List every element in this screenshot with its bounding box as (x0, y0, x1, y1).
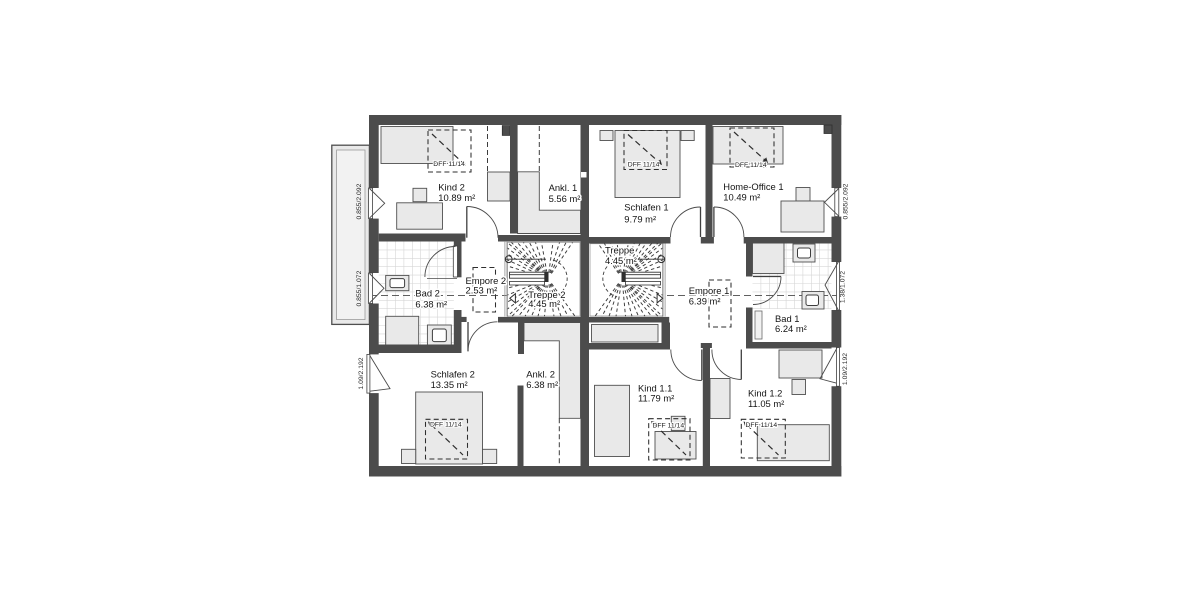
svg-text:1.38/1.072: 1.38/1.072 (840, 271, 847, 303)
svg-text:Treppe: Treppe (605, 244, 634, 255)
svg-text:13.35 m²: 13.35 m² (431, 379, 468, 390)
svg-text:11.05 m²: 11.05 m² (748, 398, 784, 409)
svg-text:0.855/2.092: 0.855/2.092 (842, 183, 849, 219)
svg-text:10.89 m²: 10.89 m² (438, 192, 475, 203)
svg-text:Bad 2: Bad 2 (415, 287, 440, 298)
svg-text:1.09/2.192: 1.09/2.192 (358, 357, 365, 389)
svg-text:9.79 m²: 9.79 m² (624, 213, 656, 224)
svg-text:4.45 m²: 4.45 m² (605, 255, 637, 266)
svg-text:DFF 11/14: DFF 11/14 (433, 161, 465, 168)
svg-text:DFF 11/14: DFF 11/14 (628, 161, 660, 168)
svg-text:Ankl. 1: Ankl. 1 (549, 182, 578, 193)
svg-text:6.24 m²: 6.24 m² (775, 323, 807, 334)
svg-text:Ankl. 2: Ankl. 2 (526, 368, 555, 379)
svg-text:11.79 m²: 11.79 m² (638, 393, 674, 404)
svg-text:6.38 m²: 6.38 m² (526, 379, 558, 390)
svg-text:0.855/1.072: 0.855/1.072 (356, 270, 363, 306)
svg-text:2.53 m²: 2.53 m² (466, 284, 498, 295)
svg-text:DFF 11/14: DFF 11/14 (746, 422, 778, 429)
svg-text:0.855/2.092: 0.855/2.092 (356, 183, 363, 219)
svg-text:Schlafen 2: Schlafen 2 (431, 368, 475, 379)
svg-text:DFF 11/14: DFF 11/14 (653, 423, 685, 430)
svg-text:10.49 m²: 10.49 m² (723, 191, 760, 202)
svg-text:6.38 m²: 6.38 m² (415, 299, 447, 310)
svg-text:6.39 m²: 6.39 m² (689, 295, 721, 306)
svg-text:1.09/2.192: 1.09/2.192 (842, 353, 849, 385)
svg-text:Kind 2: Kind 2 (438, 182, 465, 193)
svg-text:DFF 11/14: DFF 11/14 (430, 421, 462, 428)
svg-text:Schlafen 1: Schlafen 1 (624, 202, 668, 213)
svg-text:5.56 m²: 5.56 m² (549, 193, 581, 204)
svg-text:Empore 1: Empore 1 (689, 285, 730, 296)
svg-text:DFF 11/14: DFF 11/14 (735, 162, 767, 169)
svg-text:4.45 m²: 4.45 m² (528, 298, 560, 309)
